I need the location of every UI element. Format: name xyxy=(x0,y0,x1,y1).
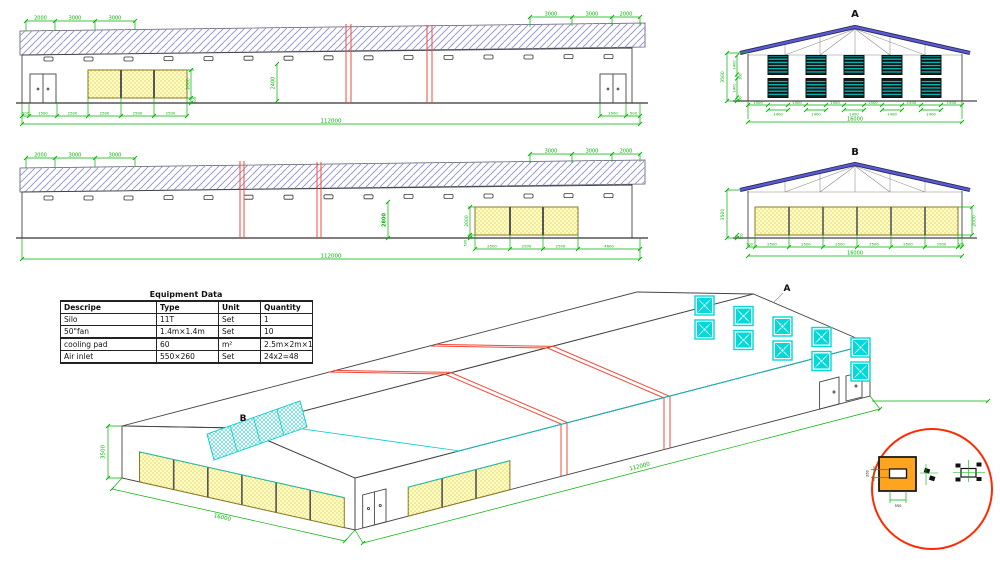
dim-label: 1400 xyxy=(773,112,783,117)
dim-label: 2000 xyxy=(34,16,47,22)
fan xyxy=(768,79,788,98)
table-cell: 10 xyxy=(261,326,313,339)
table-cell: 1 xyxy=(261,314,313,326)
table-cell: cooling pad xyxy=(61,338,157,351)
iso-label-b: B xyxy=(240,414,247,424)
table-row: 50"fan 1.4m×1.4m Set 10 xyxy=(61,326,313,339)
table-cell: 1.4m×1.4m xyxy=(157,326,219,339)
dim-label: 2500 xyxy=(166,111,176,116)
dim-label: 1500 xyxy=(792,100,802,105)
dim-label: 2000 xyxy=(464,215,470,227)
dim-label: 2500 xyxy=(487,244,497,249)
table-cell: 550×260 xyxy=(157,351,219,364)
dim-label: 1400 xyxy=(926,112,936,117)
dim-label: 1500 xyxy=(830,100,840,105)
iso-label-a: A xyxy=(784,284,791,294)
dim-label: 2500 xyxy=(869,241,879,246)
air-inlet xyxy=(284,195,293,199)
dim-label: 2400 xyxy=(271,77,277,90)
air-inlet xyxy=(244,56,253,60)
table-cell: 50"fan xyxy=(61,326,157,339)
dim-label: 2500 xyxy=(937,241,947,246)
roof-band xyxy=(20,23,645,55)
cooling-pad-band xyxy=(755,207,958,235)
air-inlet xyxy=(44,196,53,200)
dim-label: 3000 xyxy=(69,153,82,159)
dim-label: 3000 xyxy=(545,149,558,155)
air-inlet xyxy=(604,55,613,59)
table-cell: 2.5m×2m×12 xyxy=(261,338,313,351)
equipment-table: Equipment Data Descripe Type Unit Quanti… xyxy=(60,290,312,364)
dim-label: 3000 xyxy=(69,16,82,22)
eave-highlight xyxy=(455,344,870,452)
air-inlet-detail: 260 550 xyxy=(860,420,1000,560)
air-inlet xyxy=(324,195,333,199)
air-inlet xyxy=(404,55,413,59)
air-inlet xyxy=(84,196,93,200)
dim-label: 1400 xyxy=(733,60,737,70)
dim-label: 1400 xyxy=(887,112,897,117)
air-inlets xyxy=(44,55,613,61)
exhaust-fans xyxy=(768,56,941,98)
dim-label: 4600 xyxy=(604,244,614,249)
dim-label: 2000 xyxy=(186,78,192,90)
fan xyxy=(734,307,753,326)
side-elevation-2: 2000 3000 3000 3000 3000 2000 2800 2000 … xyxy=(15,140,665,280)
dim-label: 2500 xyxy=(801,241,811,246)
dim-label: 16000 xyxy=(847,117,863,123)
dim-label: 1500 xyxy=(608,111,618,116)
dim-label: 3000 xyxy=(109,16,122,22)
table-cell: Silo xyxy=(61,314,157,326)
floating-cooling-pad-b xyxy=(207,401,460,460)
end-wall-cooling-pads xyxy=(140,452,345,528)
air-inlet xyxy=(564,55,573,59)
air-inlet xyxy=(84,57,93,61)
air-inlet xyxy=(244,195,253,199)
fan xyxy=(921,56,941,75)
dim-label: 2500 xyxy=(767,241,777,246)
dim-label: 300 xyxy=(739,73,743,79)
air-inlet xyxy=(444,194,453,198)
equipment-table-title: Equipment Data xyxy=(60,290,312,299)
cooling-pads xyxy=(88,70,187,98)
air-inlet xyxy=(124,57,133,61)
air-inlet xyxy=(404,194,413,198)
fan xyxy=(806,79,826,98)
dim-label: 1400 xyxy=(811,112,821,117)
fan xyxy=(812,352,831,371)
fan xyxy=(773,317,792,336)
dim-label: 500 xyxy=(746,242,752,246)
fan xyxy=(851,338,870,357)
gable-end-a: A 3500 1400 300 1400 300 1500 1500 1 xyxy=(705,5,1000,140)
dim-label: 3000 xyxy=(586,149,599,155)
view-label-a: A xyxy=(851,9,859,20)
air-inlet xyxy=(364,195,373,199)
fan xyxy=(695,320,714,339)
dim-label: 2000 xyxy=(972,215,978,227)
table-cell: 24x2=48 xyxy=(261,351,313,364)
dim-label: 2500 xyxy=(556,244,566,249)
table-cell: Set xyxy=(219,314,261,326)
fan xyxy=(734,331,753,350)
dim-label: 2500 xyxy=(68,111,78,116)
gable-end-b: B 3500 300 2000 500 2500 2500 2500 2500 … xyxy=(705,142,1000,280)
dim-label: 500 xyxy=(22,111,30,116)
dim-label: 500 xyxy=(958,242,964,246)
dim-label: 2800 xyxy=(382,213,388,227)
dim-label: 500 xyxy=(630,111,638,116)
table-cell: 11T xyxy=(157,314,219,326)
fan xyxy=(844,56,864,75)
side-elevation-1: 2000 3000 3000 3000 3000 2000 2400 2000 … xyxy=(15,5,665,135)
dim-label: 2500 xyxy=(133,111,143,116)
air-inlet xyxy=(164,196,173,200)
dim-label: 500 xyxy=(192,96,197,104)
dim-label: 500 xyxy=(464,240,468,247)
dim-label: 2500 xyxy=(522,244,532,249)
fan xyxy=(851,362,870,381)
air-inlet xyxy=(124,196,133,200)
fan xyxy=(844,79,864,98)
dim-label: 1500 xyxy=(947,100,957,105)
table-header: Descripe xyxy=(61,301,157,314)
dim-label: 16000 xyxy=(847,251,863,257)
left-door xyxy=(30,74,56,103)
air-inlet xyxy=(524,194,533,198)
dim-label: 1400 xyxy=(733,83,737,93)
dim-label: 3000 xyxy=(109,153,122,159)
dim-label: 1500 xyxy=(753,100,763,105)
fan xyxy=(806,56,826,75)
fan xyxy=(773,341,792,360)
dim-label: 112000 xyxy=(321,254,342,260)
air-inlet xyxy=(324,56,333,60)
dim-label: 1500 xyxy=(38,111,48,116)
dim-label: 2500 xyxy=(835,241,845,246)
table-row: Silo 11T Set 1 xyxy=(61,314,313,326)
dim-label: 3000 xyxy=(545,12,558,18)
dim-label: 3500 xyxy=(101,445,107,459)
table-cell: m² xyxy=(219,338,261,351)
table-header: Unit xyxy=(219,301,261,314)
air-inlet xyxy=(484,194,493,198)
dim-label: 300 xyxy=(739,96,743,102)
dimensions: 3500 16000 112000 xyxy=(101,396,991,545)
side-wall-cooling-pads xyxy=(408,461,510,516)
fan xyxy=(921,79,941,98)
table-header: Quantity xyxy=(261,301,313,314)
label-leader xyxy=(773,293,783,303)
air-inlet xyxy=(604,194,613,198)
fan xyxy=(882,56,902,75)
roof-band xyxy=(20,160,645,192)
far-door xyxy=(820,377,839,409)
table-cell: Set xyxy=(219,326,261,339)
air-inlet xyxy=(484,55,493,59)
table-row: cooling pad 60 m² 2.5m×2m×12 xyxy=(61,338,313,351)
table-cell: 60 xyxy=(157,338,219,351)
fan xyxy=(695,296,714,315)
air-inlet xyxy=(564,194,573,198)
drawing-canvas: 2000 3000 3000 3000 3000 2000 2400 2000 … xyxy=(0,0,1000,565)
dim-label: 2500 xyxy=(903,241,913,246)
dim-label: 2500 xyxy=(100,111,110,116)
gable-fans xyxy=(695,296,870,381)
dim-label: 2000 xyxy=(620,149,633,155)
fan xyxy=(768,56,788,75)
dim-label: 260 xyxy=(866,469,870,477)
inlet-plan-view xyxy=(953,460,985,482)
table-header: Type xyxy=(157,301,219,314)
dim-label: 3500 xyxy=(720,209,726,221)
dim-label: 3500 xyxy=(720,71,726,83)
dim-label: 2000 xyxy=(620,12,633,18)
view-label-b: B xyxy=(851,147,859,158)
cooling-pads xyxy=(475,207,578,235)
air-inlet xyxy=(524,55,533,59)
dim-label: 16000 xyxy=(213,513,232,523)
air-inlet xyxy=(204,57,213,61)
air-inlet xyxy=(444,55,453,59)
dim-label: 300 xyxy=(740,233,744,239)
table-cell: Air inlet xyxy=(61,351,157,364)
air-inlet xyxy=(364,56,373,60)
table-row: Air inlet 550×260 Set 24x2=48 xyxy=(61,351,313,364)
inlet-side-view xyxy=(920,464,938,485)
air-inlet xyxy=(164,57,173,61)
dim-label: 550 xyxy=(895,504,903,508)
expansion-joints xyxy=(328,344,670,476)
dim-label: 2000 xyxy=(34,153,47,159)
right-door xyxy=(600,74,626,103)
fan xyxy=(812,328,831,347)
air-inlet xyxy=(204,196,213,200)
dim-label: 1500 xyxy=(907,100,917,105)
table-header-row: Descripe Type Unit Quantity xyxy=(61,301,313,314)
corner-door xyxy=(363,489,386,528)
dim-label: 3000 xyxy=(586,12,599,18)
air-inlet xyxy=(44,57,53,61)
fan xyxy=(882,79,902,98)
air-inlet xyxy=(284,56,293,60)
air-inlets xyxy=(44,194,613,200)
dim-label: 1500 xyxy=(868,100,878,105)
table-cell: Set xyxy=(219,351,261,364)
dim-label: 112000 xyxy=(321,119,342,125)
